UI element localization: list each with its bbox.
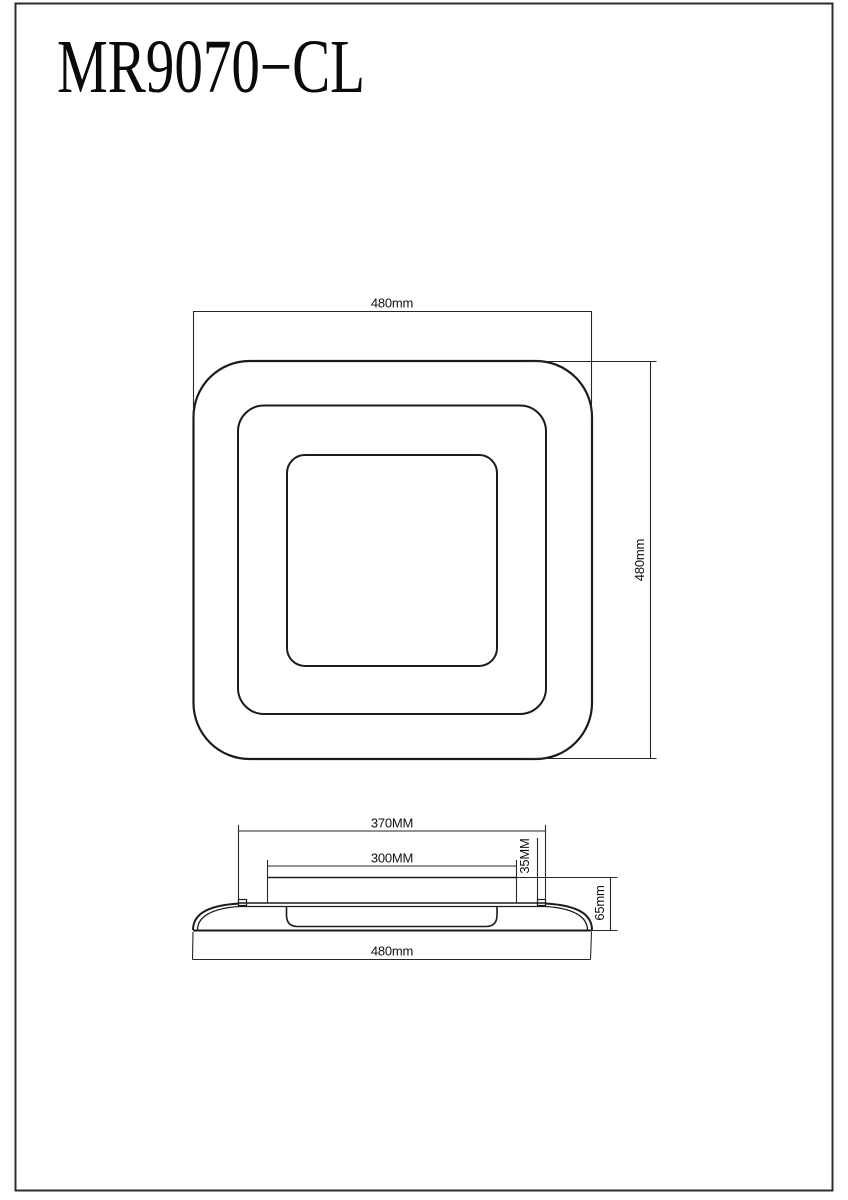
top-view-width-dimension: 480mm [193,296,592,421]
top-view-inner-panel [287,455,497,666]
side-view-inner-width-dimension: 300MM [268,851,517,904]
side-view-recessed-panel [287,906,498,927]
extension-line [591,932,592,960]
extension-line [193,932,194,960]
side-view-base-width-dimension-label: 480mm [371,944,413,959]
side-view-base-width-dimension: 480mm [193,932,592,960]
side-view-right-inner-curve [546,907,588,931]
top-view-height-dimension-label: 480mm [632,539,647,581]
side-view-mount-height-dimension-label: 35MM [517,838,532,873]
side-view-overall-height-dimension-label: 65mm [592,885,607,920]
top-view-outer-ring [194,361,593,759]
drawing-sheet: MR9070−CL 480mm 480mm [0,0,848,1200]
side-view-inner-width-dimension-label: 300MM [371,851,413,866]
page-border [16,4,833,1191]
side-view-mount-height-dimension: 35MM [517,838,538,901]
model-number-title: MR9070−CL [57,25,365,109]
side-view-left-inner-curve [198,907,240,931]
side-view-top-width-dimension-label: 370MM [371,816,413,831]
top-view: 480mm 480mm [193,296,657,760]
technical-drawing-canvas: MR9070−CL 480mm 480mm [0,0,848,1200]
side-view: 370MM 300MM 35MM 65mm [193,816,618,960]
top-view-width-dimension-label: 480mm [371,296,413,311]
top-view-middle-ring [238,406,546,715]
